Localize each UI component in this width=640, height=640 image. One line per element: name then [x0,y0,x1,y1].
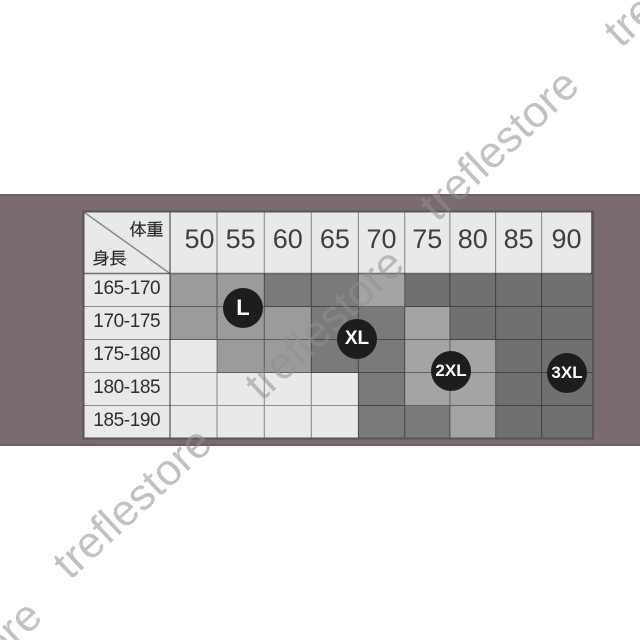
svg-text:treflestore: treflestore [594,0,640,56]
